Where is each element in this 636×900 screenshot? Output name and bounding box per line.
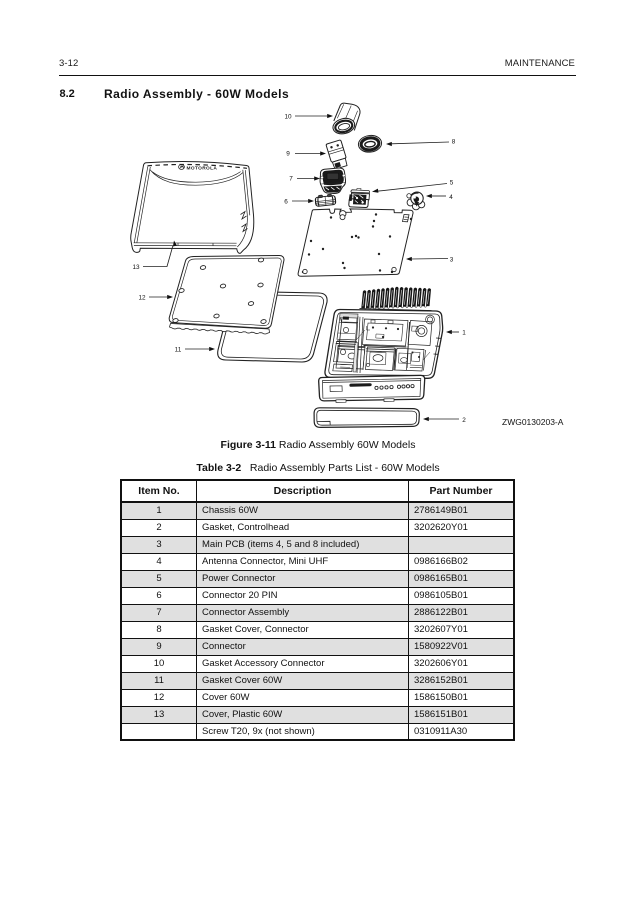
- svg-text:3: 3: [450, 257, 454, 264]
- svg-text:12: 12: [138, 295, 146, 302]
- svg-text:4: 4: [449, 194, 453, 201]
- svg-text:13: 13: [132, 264, 140, 271]
- svg-text:1: 1: [462, 330, 466, 337]
- svg-text:5: 5: [450, 180, 454, 187]
- svg-text:10: 10: [284, 114, 292, 121]
- svg-text:2: 2: [462, 417, 466, 424]
- svg-text:8: 8: [452, 139, 456, 146]
- svg-text:11: 11: [175, 347, 182, 354]
- svg-text:9: 9: [286, 151, 290, 158]
- svg-text:MOTOROLA: MOTOROLA: [187, 165, 218, 171]
- svg-text:7: 7: [289, 176, 293, 183]
- svg-text:6: 6: [284, 199, 288, 206]
